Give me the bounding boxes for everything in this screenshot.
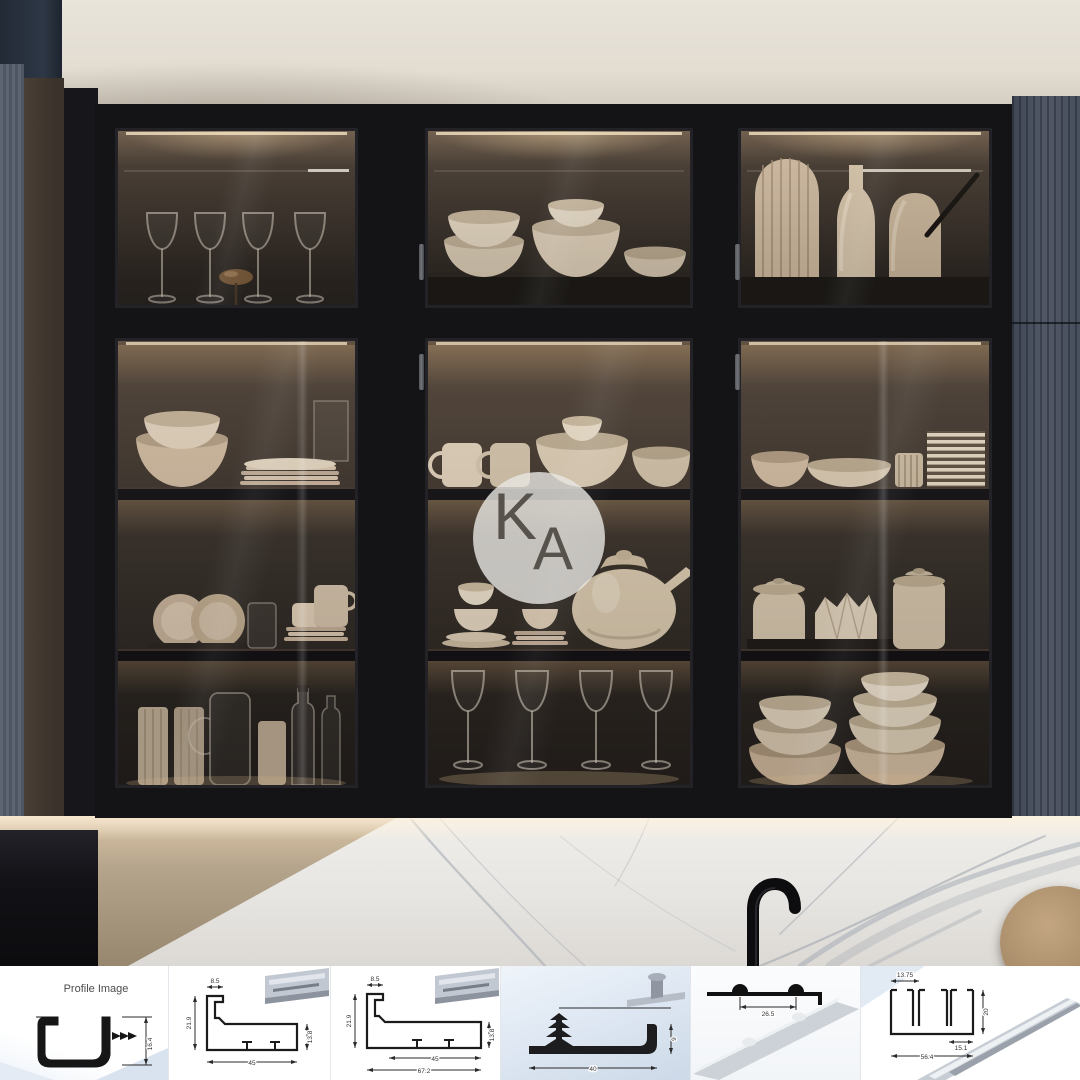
watermark-badge: K A (473, 472, 605, 604)
right-wood-panel (1012, 96, 1080, 890)
top-right-contents (741, 131, 989, 305)
panel-seam (1012, 322, 1080, 324)
bump-track-drawing: 26.5 (691, 966, 860, 1080)
glass-cabinet (95, 104, 1012, 818)
c-profile-shape (36, 1017, 137, 1067)
clear-bottle (322, 696, 340, 785)
led-strip (749, 342, 981, 345)
profile-shape (707, 984, 822, 1005)
profile-3d-render (917, 998, 1080, 1080)
profile-3d-render (265, 968, 329, 1004)
gasket-fins (112, 1032, 137, 1040)
thumbnail-profile-3[interactable]: 8.5 21.9 13.8 45 67.2 (330, 966, 500, 1080)
profile-3d-render (693, 997, 859, 1080)
led-strip (749, 132, 981, 135)
door-handle (419, 354, 424, 390)
left-cabinet-side (64, 88, 98, 854)
watermark-letter-a: A (533, 514, 573, 583)
plate-rack (148, 594, 252, 648)
svg-text:13.8: 13.8 (489, 1028, 496, 1041)
thumbnail-profile-4[interactable]: 9 40 (500, 966, 690, 1080)
shelf-floor (741, 277, 989, 305)
textured-glass (258, 721, 286, 785)
bottom-door-right (738, 338, 992, 788)
svg-text:20: 20 (983, 1008, 990, 1016)
riser-board (747, 639, 897, 649)
profile-3d-render (627, 973, 685, 1007)
c-channel-drawing: Profile Image 16.4 (0, 966, 168, 1080)
profile-outline (891, 990, 973, 1034)
frame-45-drawing: 8.5 21.9 13.8 45 (169, 966, 330, 1080)
product-image: K A Profile Image (0, 0, 1080, 1080)
glass-streak (877, 341, 889, 785)
svg-text:13.8: 13.8 (307, 1030, 314, 1043)
top-door-right (738, 128, 992, 308)
profile-outline (367, 994, 481, 1048)
top-door-middle (425, 128, 693, 308)
led-strip (436, 132, 682, 135)
bottom-left-contents (118, 341, 355, 785)
thumbnail-profile-2[interactable]: 8.5 21.9 13.8 45 (168, 966, 330, 1080)
dims: 26.5 (740, 997, 796, 1018)
top-left-contents (118, 131, 355, 305)
frame-67-drawing: 8.5 21.9 13.8 45 67.2 (331, 966, 500, 1080)
marble-backsplash (0, 816, 1080, 966)
l-gasket-drawing: 9 40 (501, 966, 690, 1080)
thumbnail-profile-6[interactable]: 13.75 20 15.1 56.4 (860, 966, 1080, 1080)
undercabinet-glow (0, 816, 1080, 840)
lidded-jar-tall (893, 568, 945, 649)
left-tall-cabinet-edge (0, 64, 24, 854)
svg-text:21.9: 21.9 (346, 1014, 353, 1027)
shelf-floor (428, 277, 690, 305)
led-strip (126, 342, 347, 345)
bottom-right-contents (741, 341, 989, 785)
wood-grain-texture (1012, 96, 1080, 890)
origami-vase (815, 593, 877, 639)
profile-3d-render (435, 968, 499, 1004)
svg-text:67.2: 67.2 (418, 1068, 431, 1075)
lidded-jar-squat (753, 578, 805, 639)
svg-text:15.1: 15.1 (955, 1045, 968, 1052)
profile-thumbnail-strip: Profile Image 16.4 (0, 966, 1080, 1080)
faucet (735, 878, 815, 970)
tumbler (248, 603, 276, 648)
svg-text:26.5: 26.5 (762, 1011, 775, 1018)
led-strip (436, 342, 682, 345)
svg-text:9: 9 (671, 1037, 678, 1041)
profile-shape (529, 1013, 657, 1054)
patterned-cup (895, 453, 923, 487)
door-handle (419, 244, 424, 280)
svg-text:45: 45 (248, 1060, 256, 1067)
svg-text:56.4: 56.4 (921, 1054, 934, 1061)
double-track-drawing: 13.75 20 15.1 56.4 (861, 966, 1080, 1080)
top-door-left (115, 128, 358, 308)
glass-jar (314, 401, 348, 461)
door-handle (735, 244, 740, 280)
top-middle-contents (428, 131, 690, 305)
watermark-letter-k: K (493, 478, 535, 554)
backsplash (0, 816, 1080, 966)
profile-outline (207, 996, 297, 1050)
svg-text:8.5: 8.5 (370, 976, 379, 983)
svg-text:13.75: 13.75 (897, 972, 914, 979)
dims: 13.75 20 15.1 56.4 (891, 972, 990, 1061)
lower-left-counter (0, 830, 98, 966)
svg-text:21.9: 21.9 (186, 1016, 193, 1029)
fluted-vase (755, 158, 819, 277)
svg-text:8.5: 8.5 (210, 978, 219, 985)
left-wall-strip (24, 78, 64, 854)
striped-plate-stack (927, 431, 985, 487)
bottom-door-left (115, 338, 358, 788)
glass-streak (296, 341, 308, 785)
bowl-stack-left (749, 696, 841, 786)
svg-text:16.4: 16.4 (147, 1037, 154, 1050)
led-strip (126, 132, 347, 135)
svg-text:40: 40 (589, 1066, 597, 1073)
door-handle (735, 354, 740, 390)
thumbnail-profile-1[interactable]: Profile Image 16.4 (0, 966, 168, 1080)
thumbnail-profile-5[interactable]: 26.5 (690, 966, 860, 1080)
svg-text:45: 45 (431, 1056, 439, 1063)
profile-image-label: Profile Image (64, 983, 129, 995)
